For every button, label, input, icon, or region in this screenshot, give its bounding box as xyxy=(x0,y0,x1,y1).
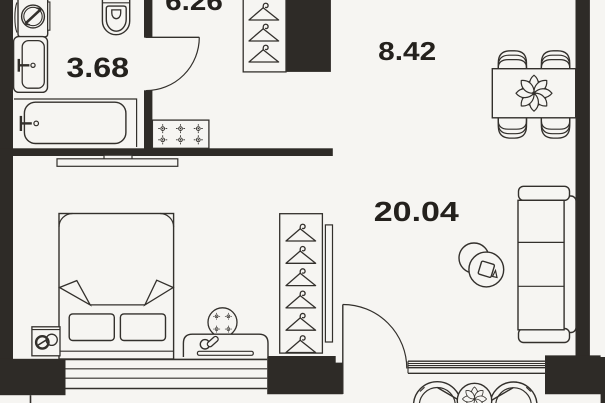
svg-text:20.04: 20.04 xyxy=(374,196,460,227)
svg-text:6.26: 6.26 xyxy=(165,0,223,16)
svg-text:3.68: 3.68 xyxy=(66,52,129,83)
svg-text:8.42: 8.42 xyxy=(378,36,436,66)
